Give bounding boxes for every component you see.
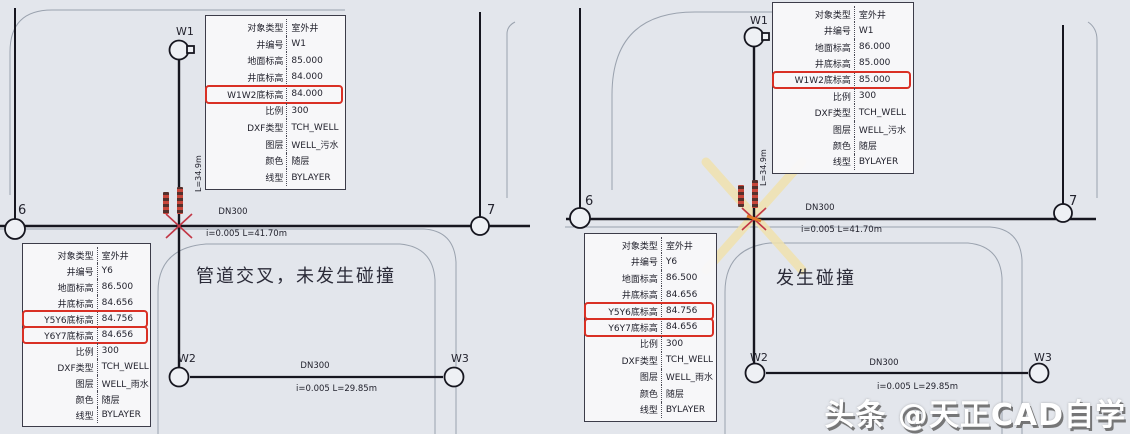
property-label: 地面标高 [777,41,854,54]
property-row: Y5Y6底标高 84.756 [27,311,146,327]
property-value: Y6 [97,263,146,279]
property-row: 比例 300 [27,343,146,359]
property-row: Y6Y7底标高 84.656 [589,319,712,335]
caption-no-collision: 管道交叉，未发生碰撞 [196,262,396,288]
property-row: 颜色 随层 [27,391,146,407]
property-row: 井编号 Y6 [27,263,146,279]
property-row: W1W2底标高 85.000 [777,72,909,88]
property-row: 颜色 随层 [777,137,909,153]
property-row: DXF类型 TCH_WELL [27,359,146,375]
well-y6 [5,219,25,239]
elevation-bar-icon [163,192,169,214]
pipe-dn-label: DN300 [805,203,834,213]
property-row: 图层 WELL_雨水 [27,375,146,391]
property-value: 84.656 [661,319,712,335]
elevation-bar-icon [752,180,758,208]
property-label: 线型 [27,409,97,422]
property-label: 地面标高 [210,54,286,67]
property-value: 室外井 [97,247,146,263]
property-value: 84.656 [97,295,146,311]
property-row: 颜色 随层 [589,385,712,401]
property-row: 井底标高 84.656 [589,286,712,302]
property-label: 颜色 [777,139,854,152]
property-label: 颜色 [210,154,286,167]
property-label: 颜色 [27,393,97,406]
elevation-bar-icon [177,187,183,214]
property-box-right-bottom: 对象类型 室外井 井编号 Y6 地面标高 86.500 井底标高 84.656 … [584,233,717,422]
property-label: 对象类型 [777,8,854,21]
property-label: DXF类型 [589,354,661,367]
property-label: 比例 [27,345,97,358]
well-w3 [1030,364,1049,383]
property-value: 室外井 [286,19,341,36]
well-label-w3: W3 [1034,351,1052,364]
property-label: 地面标高 [27,281,97,294]
property-value: WELL_污水 [854,121,909,137]
property-label: 线型 [589,403,661,416]
property-label: DXF类型 [210,121,286,134]
property-value: BYLAYER [286,169,341,186]
property-row: 井底标高 84.656 [27,295,146,311]
property-value: 85.000 [854,72,909,88]
well-label-w3: W3 [451,352,469,365]
property-label: W1W2底标高 [777,73,854,86]
property-box-left-bottom: 对象类型 室外井 井编号 Y6 地面标高 86.500 井底标高 84.656 … [22,243,151,427]
property-value: 84.656 [97,327,146,343]
property-row: DXF类型 TCH_WELL [777,104,909,120]
property-row: 线型 BYLAYER [589,402,712,418]
property-row: 井底标高 85.000 [777,55,909,71]
property-row: 井编号 W1 [210,36,341,53]
property-label: 对象类型 [589,239,661,252]
pipe-dn-label: DN300 [218,207,247,217]
property-value: 84.000 [286,69,341,86]
property-label: W1W2底标高 [210,88,286,101]
property-value: 随层 [661,385,712,401]
property-value: 300 [97,343,146,359]
property-row: Y6Y7底标高 84.656 [27,327,146,343]
well-y6 [570,208,590,228]
property-value: 86.500 [661,270,712,286]
property-value: WELL_雨水 [661,369,713,385]
property-value: TCH_WELL [854,104,909,120]
property-row: 图层 WELL_雨水 [589,369,712,385]
property-label: 地面标高 [589,272,661,285]
well-w1-marker [187,46,194,53]
property-value: TCH_WELL [661,352,713,368]
property-label: 图层 [210,138,286,151]
property-label: 井编号 [27,265,97,278]
well-label-w1: W1 [176,25,194,38]
property-label: 图层 [27,377,97,390]
property-label: 井底标高 [210,71,286,84]
property-value: BYLAYER [97,407,146,423]
pipe-dn-label: DN300 [869,358,898,368]
property-label: 对象类型 [27,249,97,262]
property-value: 86.500 [97,279,146,295]
property-value: 300 [286,103,341,120]
property-value: TCH_WELL [97,359,149,375]
left-collision-markers [163,187,192,238]
property-row: Y5Y6底标高 84.756 [589,303,712,319]
well-w3 [445,368,464,387]
well-label-w1: W1 [750,14,768,27]
property-label: Y6Y7底标高 [27,329,97,342]
property-label: 线型 [777,155,854,168]
cad-vector-layer: W1 W2 W3 6 7 DN300 i=0.005 L=41.70m DN30… [0,0,1130,434]
property-row: 地面标高 86.500 [27,279,146,295]
well-label-w2: W2 [750,351,768,364]
property-row: 井编号 W1 [777,22,909,38]
pipe-spec-label: i=0.005 L=41.70m [801,225,882,235]
well-label-y7: 7 [1069,194,1077,209]
well-y7 [471,217,489,235]
property-row: 地面标高 86.000 [777,39,909,55]
caption-collision: 发生碰撞 [776,264,856,290]
property-row: 对象类型 室外井 [27,247,146,263]
property-box-left-top: 对象类型 室外井 井编号 W1 地面标高 85.000 井底标高 84.000 … [205,15,346,190]
property-value: 随层 [97,391,146,407]
property-value: 300 [661,336,712,352]
property-value: BYLAYER [661,402,712,418]
property-row: 颜色 随层 [210,153,341,170]
property-value: 84.000 [286,86,341,103]
property-label: 井编号 [589,255,661,268]
property-value: WELL_雨水 [97,375,149,391]
road-line [507,22,515,198]
property-row: 线型 BYLAYER [210,169,341,186]
property-value: 随层 [854,137,909,153]
property-value: W1 [854,22,909,38]
property-row: DXF类型 TCH_WELL [210,119,341,136]
property-label: 井底标高 [777,57,854,70]
property-value: 84.756 [97,311,146,327]
property-value: W1 [286,36,341,53]
pipe-length-label: L=34.9m [194,155,203,192]
property-row: 井底标高 84.000 [210,69,341,86]
cad-drawing-canvas: W1 W2 W3 6 7 DN300 i=0.005 L=41.70m DN30… [0,0,1130,434]
property-box-right-top: 对象类型 室外井 井编号 W1 地面标高 86.000 井底标高 85.000 … [772,2,914,174]
property-label: 颜色 [589,387,661,400]
property-row: 地面标高 85.000 [210,52,341,69]
property-label: 比例 [210,104,286,117]
property-label: 井底标高 [27,297,97,310]
well-w1 [745,28,764,47]
property-value: 室外井 [661,237,712,253]
property-row: 对象类型 室外井 [589,237,712,253]
property-label: 比例 [777,90,854,103]
property-row: 比例 300 [210,103,341,120]
property-label: DXF类型 [777,106,854,119]
property-value: 86.000 [854,39,909,55]
property-row: 图层 WELL_污水 [777,121,909,137]
pipe-spec-label: i=0.005 L=29.85m [296,384,377,394]
well-label-y7: 7 [487,203,495,218]
property-label: 比例 [589,337,661,350]
well-w2 [746,364,765,383]
pipe-dn-label: DN300 [300,361,329,371]
property-row: W1W2底标高 84.000 [210,86,341,103]
well-label-y6: 6 [18,203,26,218]
road-line [1088,22,1097,198]
property-value: 随层 [286,153,341,170]
property-value: Y6 [661,253,712,269]
well-w2 [170,368,189,387]
property-value: BYLAYER [854,154,909,170]
property-value: 室外井 [854,6,909,22]
property-label: 井编号 [210,38,286,51]
property-label: 线型 [210,171,286,184]
property-value: WELL_污水 [286,136,341,153]
property-row: 比例 300 [589,336,712,352]
property-label: 图层 [777,123,854,136]
elevation-bar-icon [738,185,744,207]
property-row: 比例 300 [777,88,909,104]
property-value: 84.656 [661,286,712,302]
property-label: Y6Y7底标高 [589,321,661,334]
well-w1-marker [762,33,769,40]
property-row: 对象类型 室外井 [777,6,909,22]
property-row: DXF类型 TCH_WELL [589,352,712,368]
well-label-y6: 6 [585,194,593,209]
property-label: 对象类型 [210,21,286,34]
watermark-text: 头条 @天正CAD自学 [824,390,1126,434]
pipe-spec-label: i=0.005 L=41.70m [206,229,287,239]
property-value: 85.000 [854,55,909,71]
property-row: 井编号 Y6 [589,253,712,269]
property-value: 85.000 [286,52,341,69]
well-w1 [170,41,189,60]
property-row: 线型 BYLAYER [27,407,146,423]
property-label: 井底标高 [589,288,661,301]
pipe-length-label: L=34.9m [759,149,768,186]
property-row: 图层 WELL_污水 [210,136,341,153]
property-value: 84.756 [661,303,712,319]
property-label: DXF类型 [27,361,97,374]
property-row: 地面标高 86.500 [589,270,712,286]
property-label: Y5Y6底标高 [27,313,97,326]
property-label: Y5Y6底标高 [589,305,661,318]
property-value: TCH_WELL [286,119,341,136]
property-label: 井编号 [777,24,854,37]
well-label-w2: W2 [178,352,196,365]
property-row: 线型 BYLAYER [777,154,909,170]
property-row: 对象类型 室外井 [210,19,341,36]
property-label: 图层 [589,370,661,383]
property-value: 300 [854,88,909,104]
